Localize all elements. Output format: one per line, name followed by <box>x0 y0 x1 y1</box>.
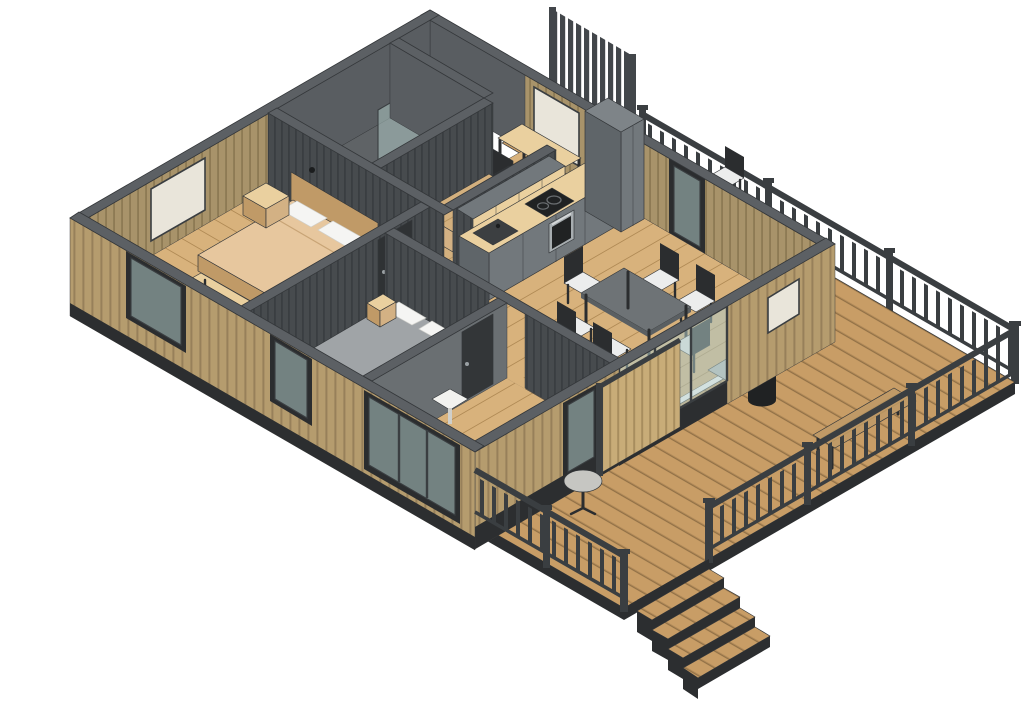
tall-cabinet <box>585 98 644 232</box>
tall-cabinet-front <box>621 119 644 232</box>
isometric-floorplan <box>0 0 1024 722</box>
architectural-rendering <box>0 0 1024 722</box>
wall-sconce <box>309 167 315 173</box>
